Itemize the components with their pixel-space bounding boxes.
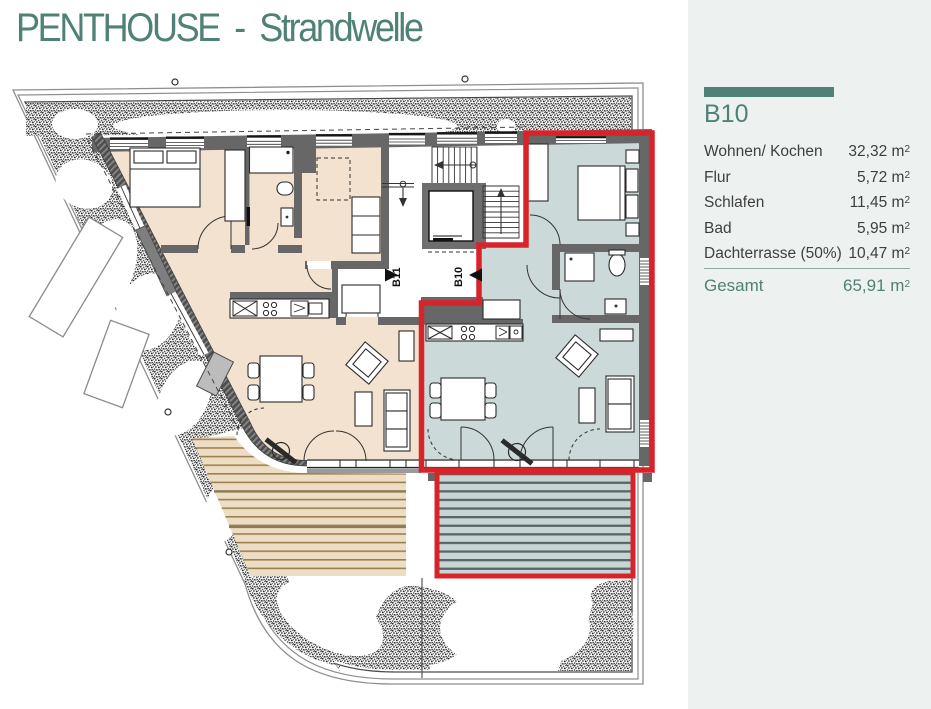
svg-text:B10: B10: [453, 267, 465, 287]
svg-text:B11: B11: [391, 267, 403, 287]
